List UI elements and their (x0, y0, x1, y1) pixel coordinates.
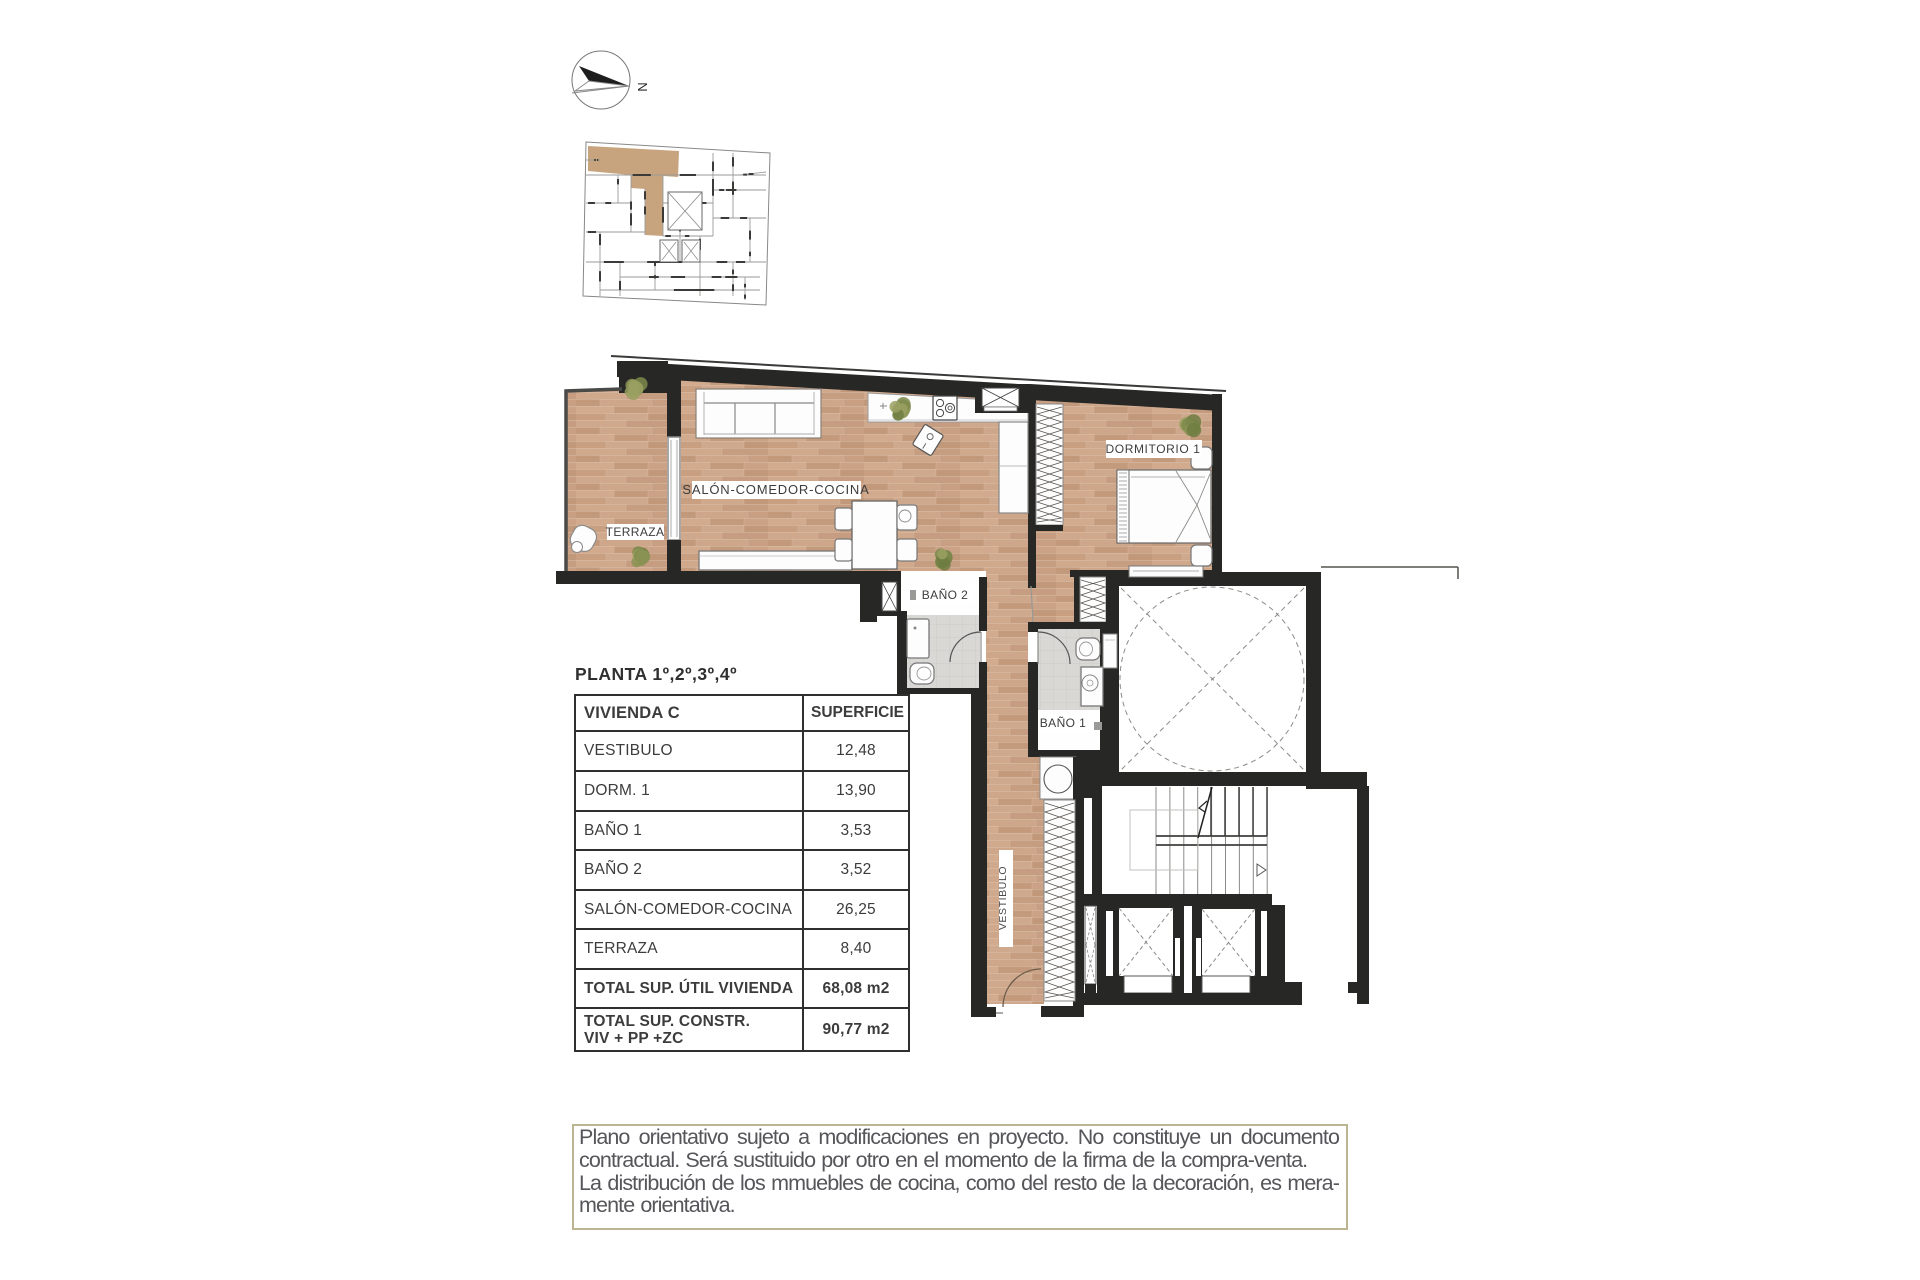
svg-text:DORMITORIO 1: DORMITORIO 1 (1106, 442, 1201, 456)
svg-text:BAÑO 1: BAÑO 1 (1040, 716, 1086, 730)
svg-text:BAÑO 2: BAÑO 2 (922, 588, 968, 602)
svg-text:TERRAZA: TERRAZA (606, 525, 665, 539)
svg-text:SALÓN-COMEDOR-COCINA: SALÓN-COMEDOR-COCINA (682, 482, 869, 497)
svg-text:VESTIBULO: VESTIBULO (997, 866, 1009, 930)
svg-text:N: N (635, 82, 650, 91)
